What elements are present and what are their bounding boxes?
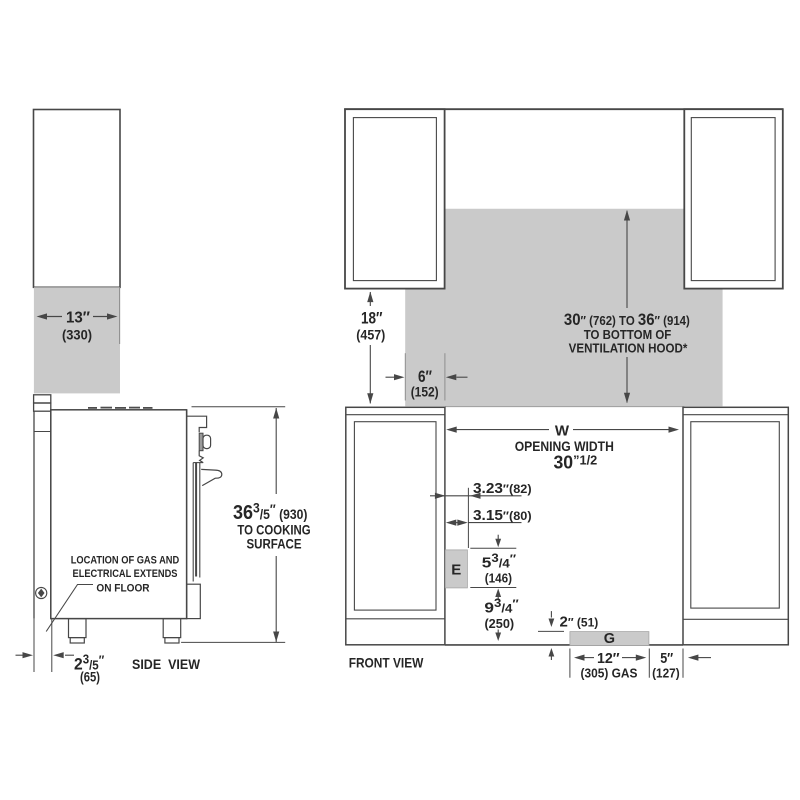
svg-text:LOCATION OF GAS AND: LOCATION OF GAS AND (71, 555, 180, 567)
svg-text:363/5″ (930): 363/5″ (930) (233, 500, 307, 524)
svg-text:TO COOKING: TO COOKING (237, 523, 310, 538)
svg-text:(250): (250) (484, 616, 514, 631)
svg-text:(127): (127) (652, 666, 680, 681)
svg-text:3.15″(80): 3.15″(80) (473, 507, 532, 523)
svg-text:FRONT VIEW: FRONT VIEW (349, 656, 425, 671)
svg-text:53/4″: 53/4″ (482, 552, 516, 571)
svg-text:(152): (152) (411, 385, 439, 400)
svg-text:ON FLOOR: ON FLOOR (96, 583, 149, 595)
svg-text:6″: 6″ (418, 368, 432, 386)
svg-text:E: E (451, 562, 461, 579)
svg-text:SIDE VIEW: SIDE VIEW (132, 657, 201, 672)
svg-text:(305) GAS: (305) GAS (581, 666, 638, 681)
svg-text:2″ (51): 2″ (51) (560, 614, 599, 631)
svg-text:13″: 13″ (66, 310, 90, 327)
svg-text:SURFACE: SURFACE (247, 537, 302, 552)
svg-text:G: G (604, 631, 615, 647)
svg-text:12″: 12″ (597, 651, 620, 667)
svg-text:93/4″: 93/4″ (484, 597, 518, 616)
svg-text:(65): (65) (80, 670, 100, 685)
svg-text:W: W (555, 422, 570, 439)
svg-text:3.23″(82): 3.23″(82) (473, 480, 532, 496)
svg-text:(146): (146) (485, 571, 512, 586)
svg-text:(457): (457) (356, 328, 385, 343)
svg-text:VENTILATION HOOD*: VENTILATION HOOD* (569, 341, 689, 356)
svg-text:TO BOTTOM OF: TO BOTTOM OF (584, 327, 672, 342)
svg-text:30”1/2: 30”1/2 (554, 452, 598, 472)
svg-text:ELECTRICAL EXTENDS: ELECTRICAL EXTENDS (73, 568, 178, 580)
svg-text:18″: 18″ (361, 310, 383, 328)
svg-text:(330): (330) (62, 328, 92, 343)
svg-text:5″: 5″ (660, 651, 673, 667)
